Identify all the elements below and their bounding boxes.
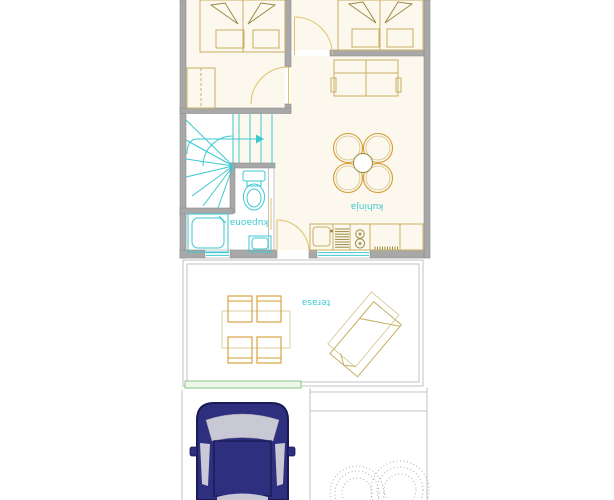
dining-table bbox=[354, 154, 373, 173]
wall-bottom-4 bbox=[370, 250, 424, 258]
wall-bedroom-left-bottom bbox=[180, 108, 291, 114]
terrace-table bbox=[222, 311, 290, 348]
kitchen-faucet bbox=[330, 230, 333, 233]
bathroom-label: kupaona bbox=[227, 216, 271, 227]
windows bbox=[205, 250, 370, 258]
living-kitchen-floor bbox=[291, 56, 424, 250]
sun-lounger bbox=[324, 292, 405, 377]
wall-bedroom-divider-upper bbox=[285, 0, 291, 67]
wall-bedroom-right-bottom bbox=[330, 50, 424, 56]
landing-floor bbox=[233, 113, 291, 168]
floor-plan-canvas: kupaona kuhinja terasa bbox=[0, 0, 614, 500]
toilet bbox=[243, 171, 265, 210]
car-windshield bbox=[206, 414, 279, 441]
bathroom-window bbox=[205, 250, 230, 258]
car-mirror-left bbox=[190, 447, 197, 456]
car bbox=[190, 403, 295, 500]
shower bbox=[188, 214, 228, 252]
terrace-border-outer bbox=[183, 260, 423, 386]
bedroom-left-floor bbox=[186, 0, 285, 108]
bush-right bbox=[371, 461, 429, 500]
bedroom-right-floor bbox=[291, 0, 424, 50]
terrace bbox=[183, 260, 423, 388]
bathroom-sink bbox=[249, 236, 271, 252]
terrace-label: terasa bbox=[296, 296, 336, 307]
terrace-chairs bbox=[228, 296, 281, 363]
wall-stair-shower bbox=[180, 208, 233, 214]
car-mirror-right bbox=[288, 447, 295, 456]
kitchen-window-frame bbox=[317, 250, 370, 258]
wall-exterior-left bbox=[180, 0, 186, 258]
car-roof bbox=[214, 441, 271, 496]
wall-bottom-1 bbox=[180, 250, 205, 258]
kitchen-window bbox=[317, 250, 370, 258]
wall-bathroom-left bbox=[230, 163, 235, 213]
wall-bottom-3 bbox=[309, 250, 317, 258]
wall-exterior-right bbox=[424, 0, 430, 258]
floor-plan-drawing bbox=[0, 0, 614, 500]
bushes bbox=[330, 461, 429, 500]
terrace-step-planter bbox=[185, 381, 301, 388]
kitchen-label: kuhinja bbox=[345, 200, 389, 211]
wall-bathroom-top bbox=[230, 163, 275, 168]
bathroom-window-frame bbox=[205, 250, 230, 258]
wall-bottom-2 bbox=[230, 250, 277, 258]
bush-left bbox=[330, 466, 384, 500]
